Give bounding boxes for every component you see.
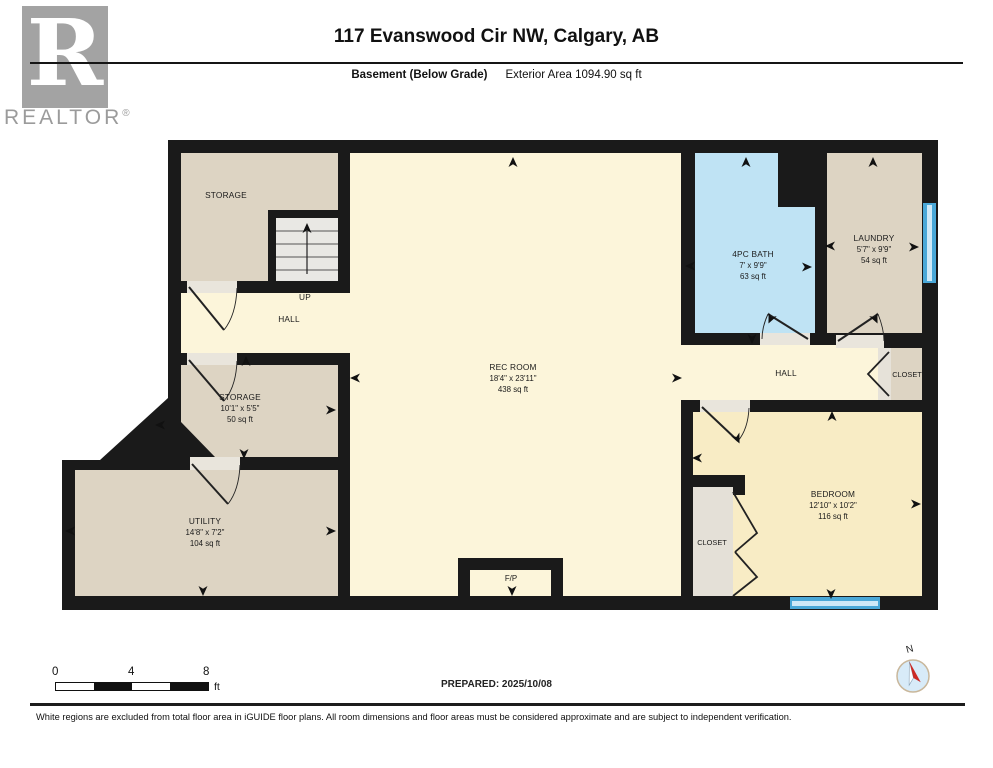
exterior-area-label: Exterior Area 1094.90 sq ft: [505, 69, 641, 81]
utility-label: UTILITY: [189, 516, 222, 526]
closet-wall: [681, 475, 745, 487]
registered-mark: ®: [122, 108, 129, 119]
fireplace-label: F/P: [505, 574, 517, 583]
header-divider: [30, 62, 963, 64]
floorplan-page: R REALTOR® 117 Evanswood Cir NW, Calgary…: [0, 0, 993, 768]
scale-unit-label: ft: [214, 681, 220, 693]
scale-tick-4: 4: [128, 666, 134, 678]
realtor-logo-letter: R: [22, 2, 108, 104]
page-title: 117 Evanswood Cir NW, Calgary, AB: [0, 26, 993, 48]
laundry-dims: 5'7" x 9'9": [857, 245, 892, 254]
storage-mid-dims: 10'1" x 5'5": [221, 404, 260, 413]
realtor-wordmark: REALTOR®: [4, 106, 144, 130]
scale-tick-0: 0: [52, 666, 58, 678]
laundry-label: LAUNDRY: [854, 233, 895, 243]
compass-north-label: N: [905, 643, 915, 655]
utility-area: 104 sq ft: [190, 539, 221, 548]
compass-icon: N: [886, 640, 940, 702]
bedroom-label: BEDROOM: [811, 489, 855, 499]
realtor-logo-icon: R: [22, 6, 108, 108]
room-laundry: [827, 153, 922, 333]
scale-bar-segments: [55, 682, 209, 691]
bedroom-window: [790, 597, 880, 609]
hall-right-label: HALL: [775, 368, 797, 378]
stairs-up-label: UP: [299, 292, 311, 302]
bath-dims: 7' x 9'9": [739, 261, 767, 270]
laundry-window: [923, 203, 936, 283]
storage-upper-label: STORAGE: [205, 190, 247, 200]
rec-room-dims: 18'4" x 23'11": [489, 374, 536, 383]
utility-dims: 14'8" x 7'2": [186, 528, 225, 537]
hall-upper-label: HALL: [278, 314, 300, 324]
closet-hall-label: CLOSET: [892, 370, 922, 379]
bedroom-dims: 12'10" x 10'2": [809, 501, 857, 510]
scale-tick-8: 8: [203, 666, 209, 678]
rec-room-label: REC ROOM: [489, 362, 536, 372]
floorplan-drawing: STORAGE UP HALL REC ROOM 18'4" x 23'11" …: [0, 0, 993, 768]
bath-label: 4PC BATH: [732, 249, 774, 259]
closet-bedroom-label: CLOSET: [697, 538, 727, 547]
bedroom-area: 116 sq ft: [818, 512, 848, 521]
storage-mid-area: 50 sq ft: [227, 415, 254, 424]
storage-mid-label: STORAGE: [219, 392, 261, 402]
bath-area: 63 sq ft: [740, 272, 767, 281]
floor-label: Basement (Below Grade): [351, 69, 487, 81]
header-subtitle: Basement (Below Grade)Exterior Area 1094…: [0, 69, 993, 81]
laundry-area: 54 sq ft: [861, 256, 888, 265]
rec-room-area: 438 sq ft: [498, 385, 529, 394]
